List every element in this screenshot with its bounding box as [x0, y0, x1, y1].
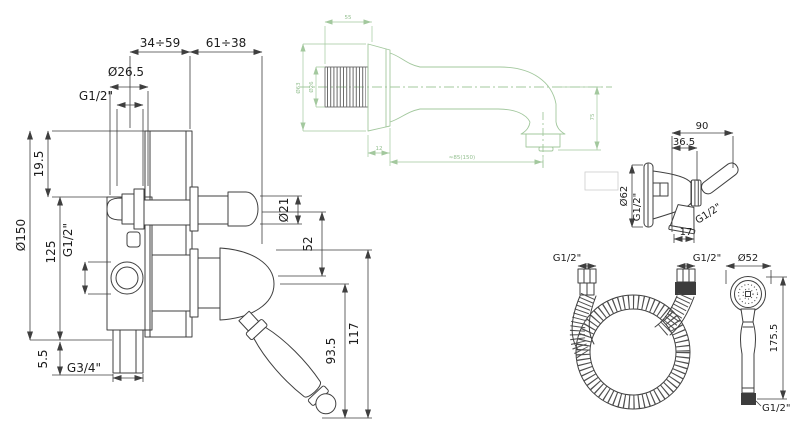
diverter-knob	[107, 187, 258, 231]
dim-bracket-width: 90	[696, 121, 709, 132]
bracket-lever	[699, 161, 740, 197]
dim-head-diameter: Ø52	[738, 252, 759, 264]
dim-bracket-socket-offset: 17	[680, 227, 693, 238]
spout-dimensions: 55 Ø63 Ø26 12 ≈85(150) 75	[295, 15, 601, 167]
dim-handshower-thread: G1/2"	[762, 403, 790, 414]
dim-depth-range-right: 61÷38	[206, 36, 247, 50]
cartridge-dome	[152, 248, 274, 320]
hand-shower-view: Ø52 175.5 G1/2"	[726, 252, 790, 414]
dim-bottom-thread: G3/4"	[67, 361, 101, 375]
dim-knob-cap: Ø26.5	[108, 65, 144, 79]
shower-hose-view: G1/2" G1/2"	[553, 253, 721, 409]
dim-bracket-inlet-thread: G1/2"	[632, 193, 643, 221]
dim-handshower-length: 175.5	[769, 324, 780, 353]
dim-stem-offset: 52	[301, 236, 315, 251]
dim-bottom-offset: 5.5	[36, 349, 50, 368]
dim-spout-thread: Ø26	[308, 81, 315, 93]
dim-hose-end-left: G1/2"	[553, 253, 581, 264]
dim-spout-drop: 75	[590, 113, 596, 120]
dim-top-thread: G1/2"	[79, 89, 113, 103]
shower-head	[731, 277, 766, 312]
dim-hose-end-right: G1/2"	[693, 253, 721, 264]
wall-bracket-view: 90 36.5 Ø62 G1/2" G1/2" 17	[618, 121, 740, 243]
dim-bracket-offset: 36.5	[673, 137, 695, 148]
dim-stem: Ø21	[277, 198, 291, 223]
dim-spout-flange: Ø63	[295, 82, 302, 94]
dim-handle-total: 117	[347, 323, 361, 346]
dim-side-port-thread: G1/2"	[61, 223, 75, 257]
spout-side-view: 55 Ø63 Ø26 12 ≈85(150) 75	[295, 15, 612, 168]
faucet-dimension-drawing: 34÷59 61÷38 Ø26.5 G1/2" 19.5 Ø150 125 5.…	[0, 0, 800, 442]
dim-spout-thread-length: 55	[345, 15, 352, 21]
dim-spout-projection: ≈85(150)	[449, 155, 475, 161]
technical-drawing-canvas: 34÷59 61÷38 Ø26.5 G1/2" 19.5 Ø150 125 5.…	[0, 0, 800, 442]
dim-handle: 93.5	[324, 338, 338, 365]
dim-center-height: 125	[44, 241, 58, 264]
dim-spout-flange-depth: 12	[376, 146, 383, 152]
dim-bracket-flange: Ø62	[618, 186, 630, 207]
dim-plate: Ø150	[14, 219, 28, 251]
dim-depth-range-left: 34÷59	[140, 36, 181, 50]
hose-dimensions: G1/2" G1/2"	[553, 253, 721, 266]
spout-body	[368, 44, 565, 168]
handshower-dimensions: Ø52 175.5 G1/2"	[726, 252, 790, 414]
shower-handle	[741, 309, 761, 406]
reference-box	[585, 172, 618, 190]
mixer-side-view: 34÷59 61÷38 Ø26.5 G1/2" 19.5 Ø150 125 5.…	[14, 36, 372, 420]
dim-top-offset: 19.5	[32, 151, 46, 178]
